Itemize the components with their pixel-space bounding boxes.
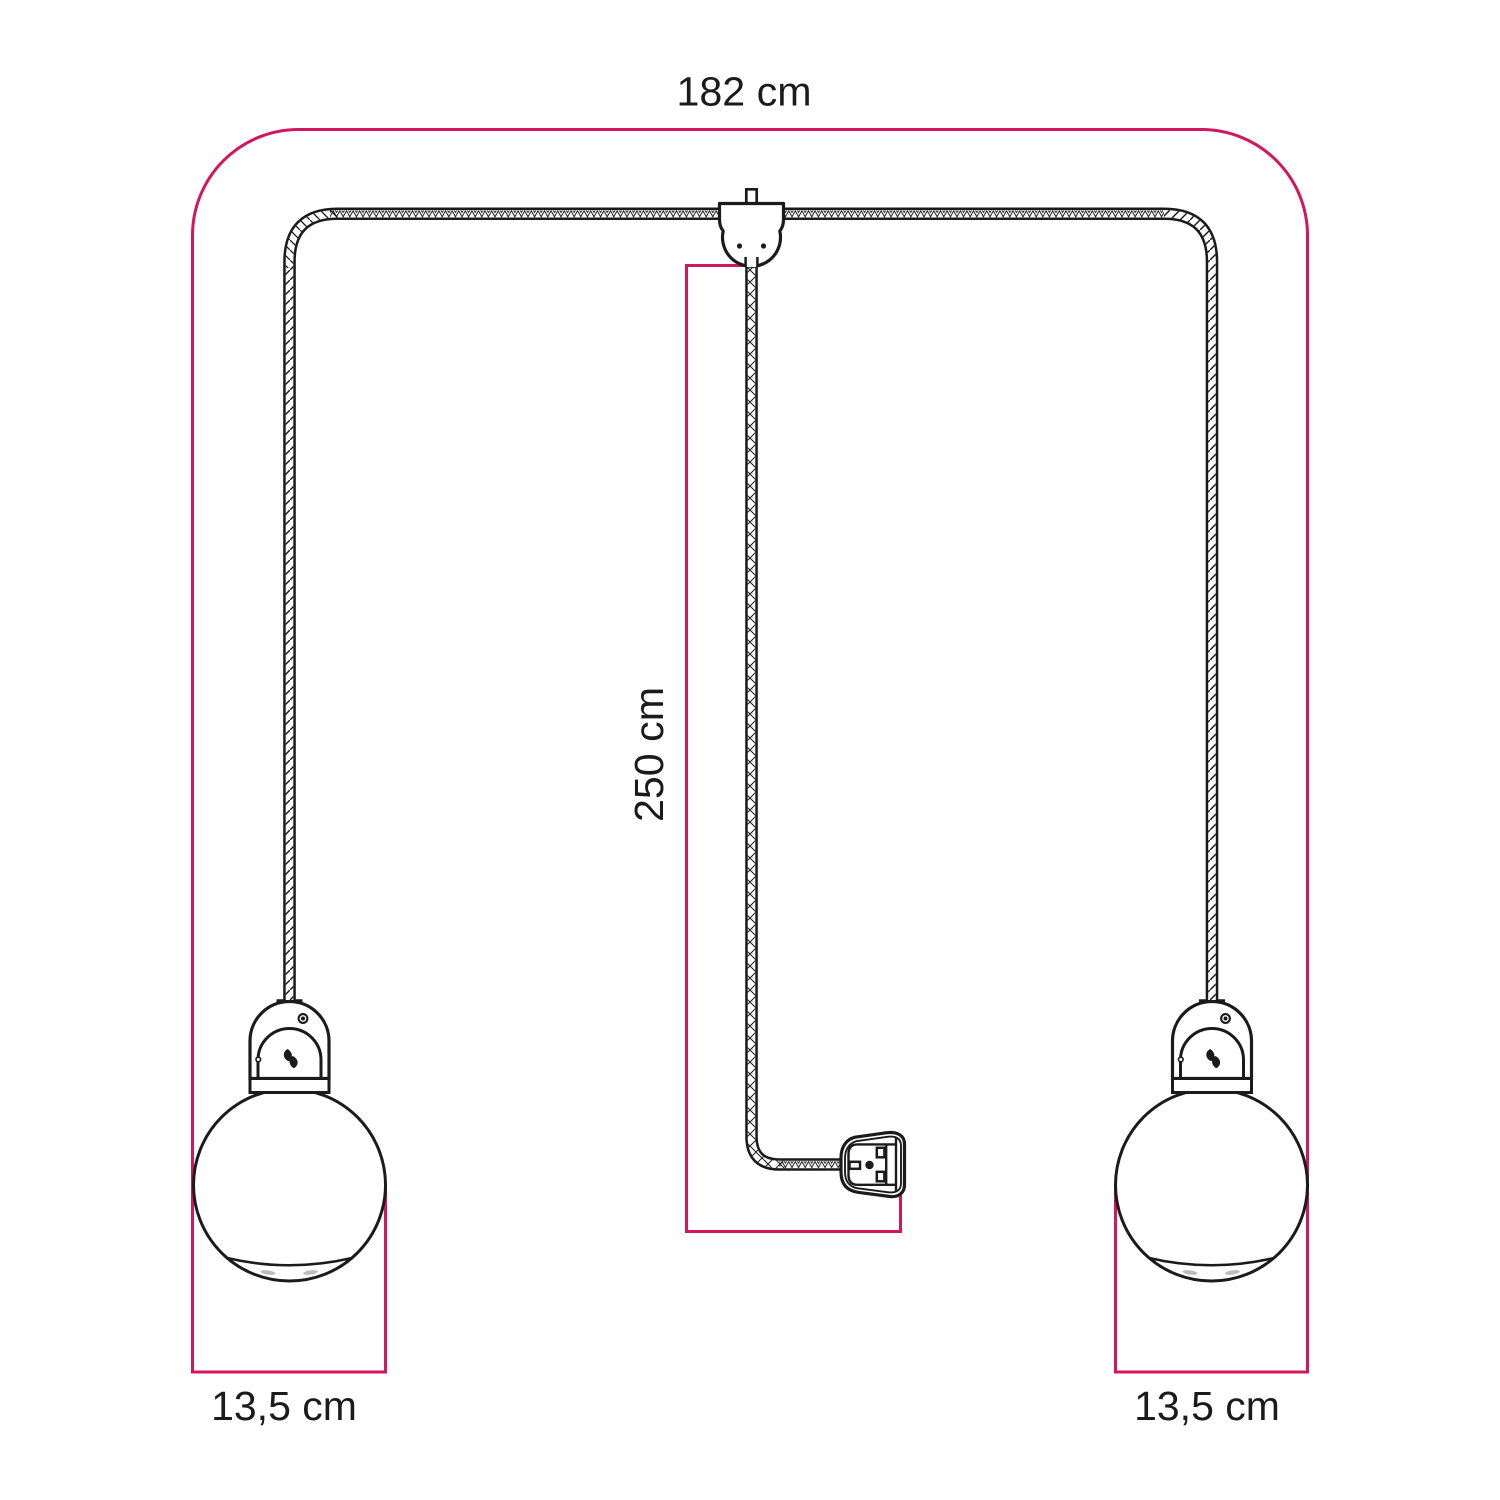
svg-text:13,5 cm: 13,5 cm <box>1134 1383 1280 1429</box>
svg-text:13,5 cm: 13,5 cm <box>211 1383 357 1429</box>
svg-text:250 cm: 250 cm <box>626 687 672 822</box>
svg-text:182 cm: 182 cm <box>676 69 811 115</box>
